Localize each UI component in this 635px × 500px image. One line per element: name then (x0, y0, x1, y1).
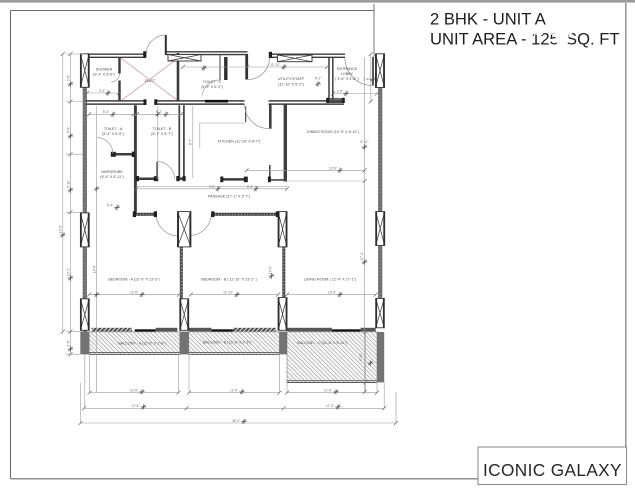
svg-text:13'-6": 13'-6" (269, 266, 273, 274)
svg-text:5'-4": 5'-4" (103, 110, 109, 114)
svg-text:TOILET - A: TOILET - A (104, 127, 123, 131)
svg-text:WARDROBE: WARDROBE (101, 170, 123, 174)
svg-text:2'-6": 2'-6" (337, 90, 343, 94)
svg-text:BALCONY - B (12'-6" X 2'-6"): BALCONY - B (12'-6" X 2'-6") (203, 341, 251, 345)
svg-text:17'-6": 17'-6" (131, 404, 139, 408)
svg-text:5'-4": 5'-4" (107, 204, 113, 208)
svg-text:4'-0": 4'-0" (209, 185, 215, 189)
svg-text:SQ. FT: SQ. FT (566, 30, 619, 49)
svg-text:2 BHK - UNIT A: 2 BHK - UNIT A (430, 10, 547, 29)
svg-text:BEDROOM - A (12'-9" X 13'-2"): BEDROOM - A (12'-9" X 13'-2") (108, 278, 159, 282)
svg-text:ICONIC GALAXY: ICONIC GALAXY (483, 460, 622, 480)
svg-text:3'-3": 3'-3" (99, 89, 105, 93)
svg-text:(5'-4" X 5'-11"): (5'-4" X 5'-11") (100, 175, 123, 179)
svg-text:5'-2": 5'-2" (315, 77, 321, 81)
svg-text:12'-6": 12'-6" (328, 291, 336, 295)
svg-text:DINING ROOM (10'-9" X 8'-11"): DINING ROOM (10'-9" X 8'-11") (307, 130, 359, 134)
svg-text:8'-11": 8'-11" (361, 140, 369, 144)
svg-text:38'-0": 38'-0" (232, 419, 240, 423)
svg-text:TOILET - B: TOILET - B (153, 127, 172, 131)
svg-text:BEDROOM - B ( 11'-10" X 13'-2": BEDROOM - B ( 11'-10" X 13'-2" ) (201, 278, 256, 282)
svg-text:2'-4": 2'-4" (363, 78, 369, 82)
svg-text:(11'-10" X 5'-2"): (11'-10" X 5'-2") (278, 83, 303, 87)
svg-text:2'-2": 2'-2" (247, 185, 253, 189)
svg-text:12'-6": 12'-6" (130, 388, 138, 392)
svg-text:5'-6": 5'-6" (66, 127, 70, 133)
svg-text:BALCONY - C (11'-6" X 5'-11"): BALCONY - C (11'-6" X 5'-11") (297, 341, 347, 345)
svg-text:11'-10": 11'-10" (223, 291, 233, 295)
svg-text:12'-6": 12'-6" (230, 388, 238, 392)
svg-text:11'-10": 11'-10" (270, 63, 280, 67)
svg-text:2'-6": 2'-6" (66, 340, 70, 346)
svg-text:5'-11": 5'-11" (66, 180, 70, 188)
svg-text:12'-6": 12'-6" (130, 291, 138, 295)
svg-text:17'-6": 17'-6" (326, 404, 334, 408)
svg-text:LIVING ROOM ( 12'-4" X 17'-1"): LIVING ROOM ( 12'-4" X 17'-1") (304, 278, 356, 282)
svg-text:(4'-9" X 5'-2"): (4'-9" X 5'-2") (201, 85, 223, 89)
svg-text:( 3'-6" X 4'-6" ): ( 3'-6" X 4'-6" ) (335, 77, 359, 81)
svg-text:13'-6": 13'-6" (93, 265, 97, 273)
svg-text:DUCT: DUCT (145, 79, 156, 83)
svg-text:ENTRANCE: ENTRANCE (337, 67, 358, 71)
svg-text:13'-6": 13'-6" (59, 225, 63, 233)
svg-text:5'-1": 5'-1" (156, 110, 162, 114)
svg-text:BALCONY - A (12'-6" X 2'-6"): BALCONY - A (12'-6" X 2'-6") (118, 342, 166, 346)
svg-text:11'-6": 11'-6" (324, 388, 332, 392)
svg-text:KITCHEN (11'-10" X 8'-7"): KITCHEN (11'-10" X 8'-7") (218, 140, 261, 144)
svg-text:(3'-3" X 5'-6"): (3'-3" X 5'-6") (93, 73, 115, 77)
svg-text:5'-6": 5'-6" (66, 75, 70, 81)
svg-text:UTILITY/STAFF: UTILITY/STAFF (278, 77, 305, 81)
svg-text:12'-6": 12'-6" (329, 166, 337, 170)
svg-text:TOILET - C: TOILET - C (203, 80, 222, 84)
svg-text:17'-1": 17'-1" (360, 252, 364, 260)
svg-text:13'-2": 13'-2" (66, 268, 70, 276)
svg-text:8'-7": 8'-7" (189, 139, 193, 145)
svg-text:LOBBY: LOBBY (341, 72, 354, 76)
svg-text:(5'-4" X 5'-6"): (5'-4" X 5'-6") (102, 132, 124, 136)
svg-text:SHOWER: SHOWER (96, 68, 113, 72)
svg-text:5'-11": 5'-11" (359, 353, 363, 361)
svg-text:(5'-1" X 5'-7"): (5'-1" X 5'-7") (151, 132, 173, 136)
svg-text:PASSAGE (17'-1" X 3'-7"): PASSAGE (17'-1" X 3'-7") (208, 195, 250, 199)
